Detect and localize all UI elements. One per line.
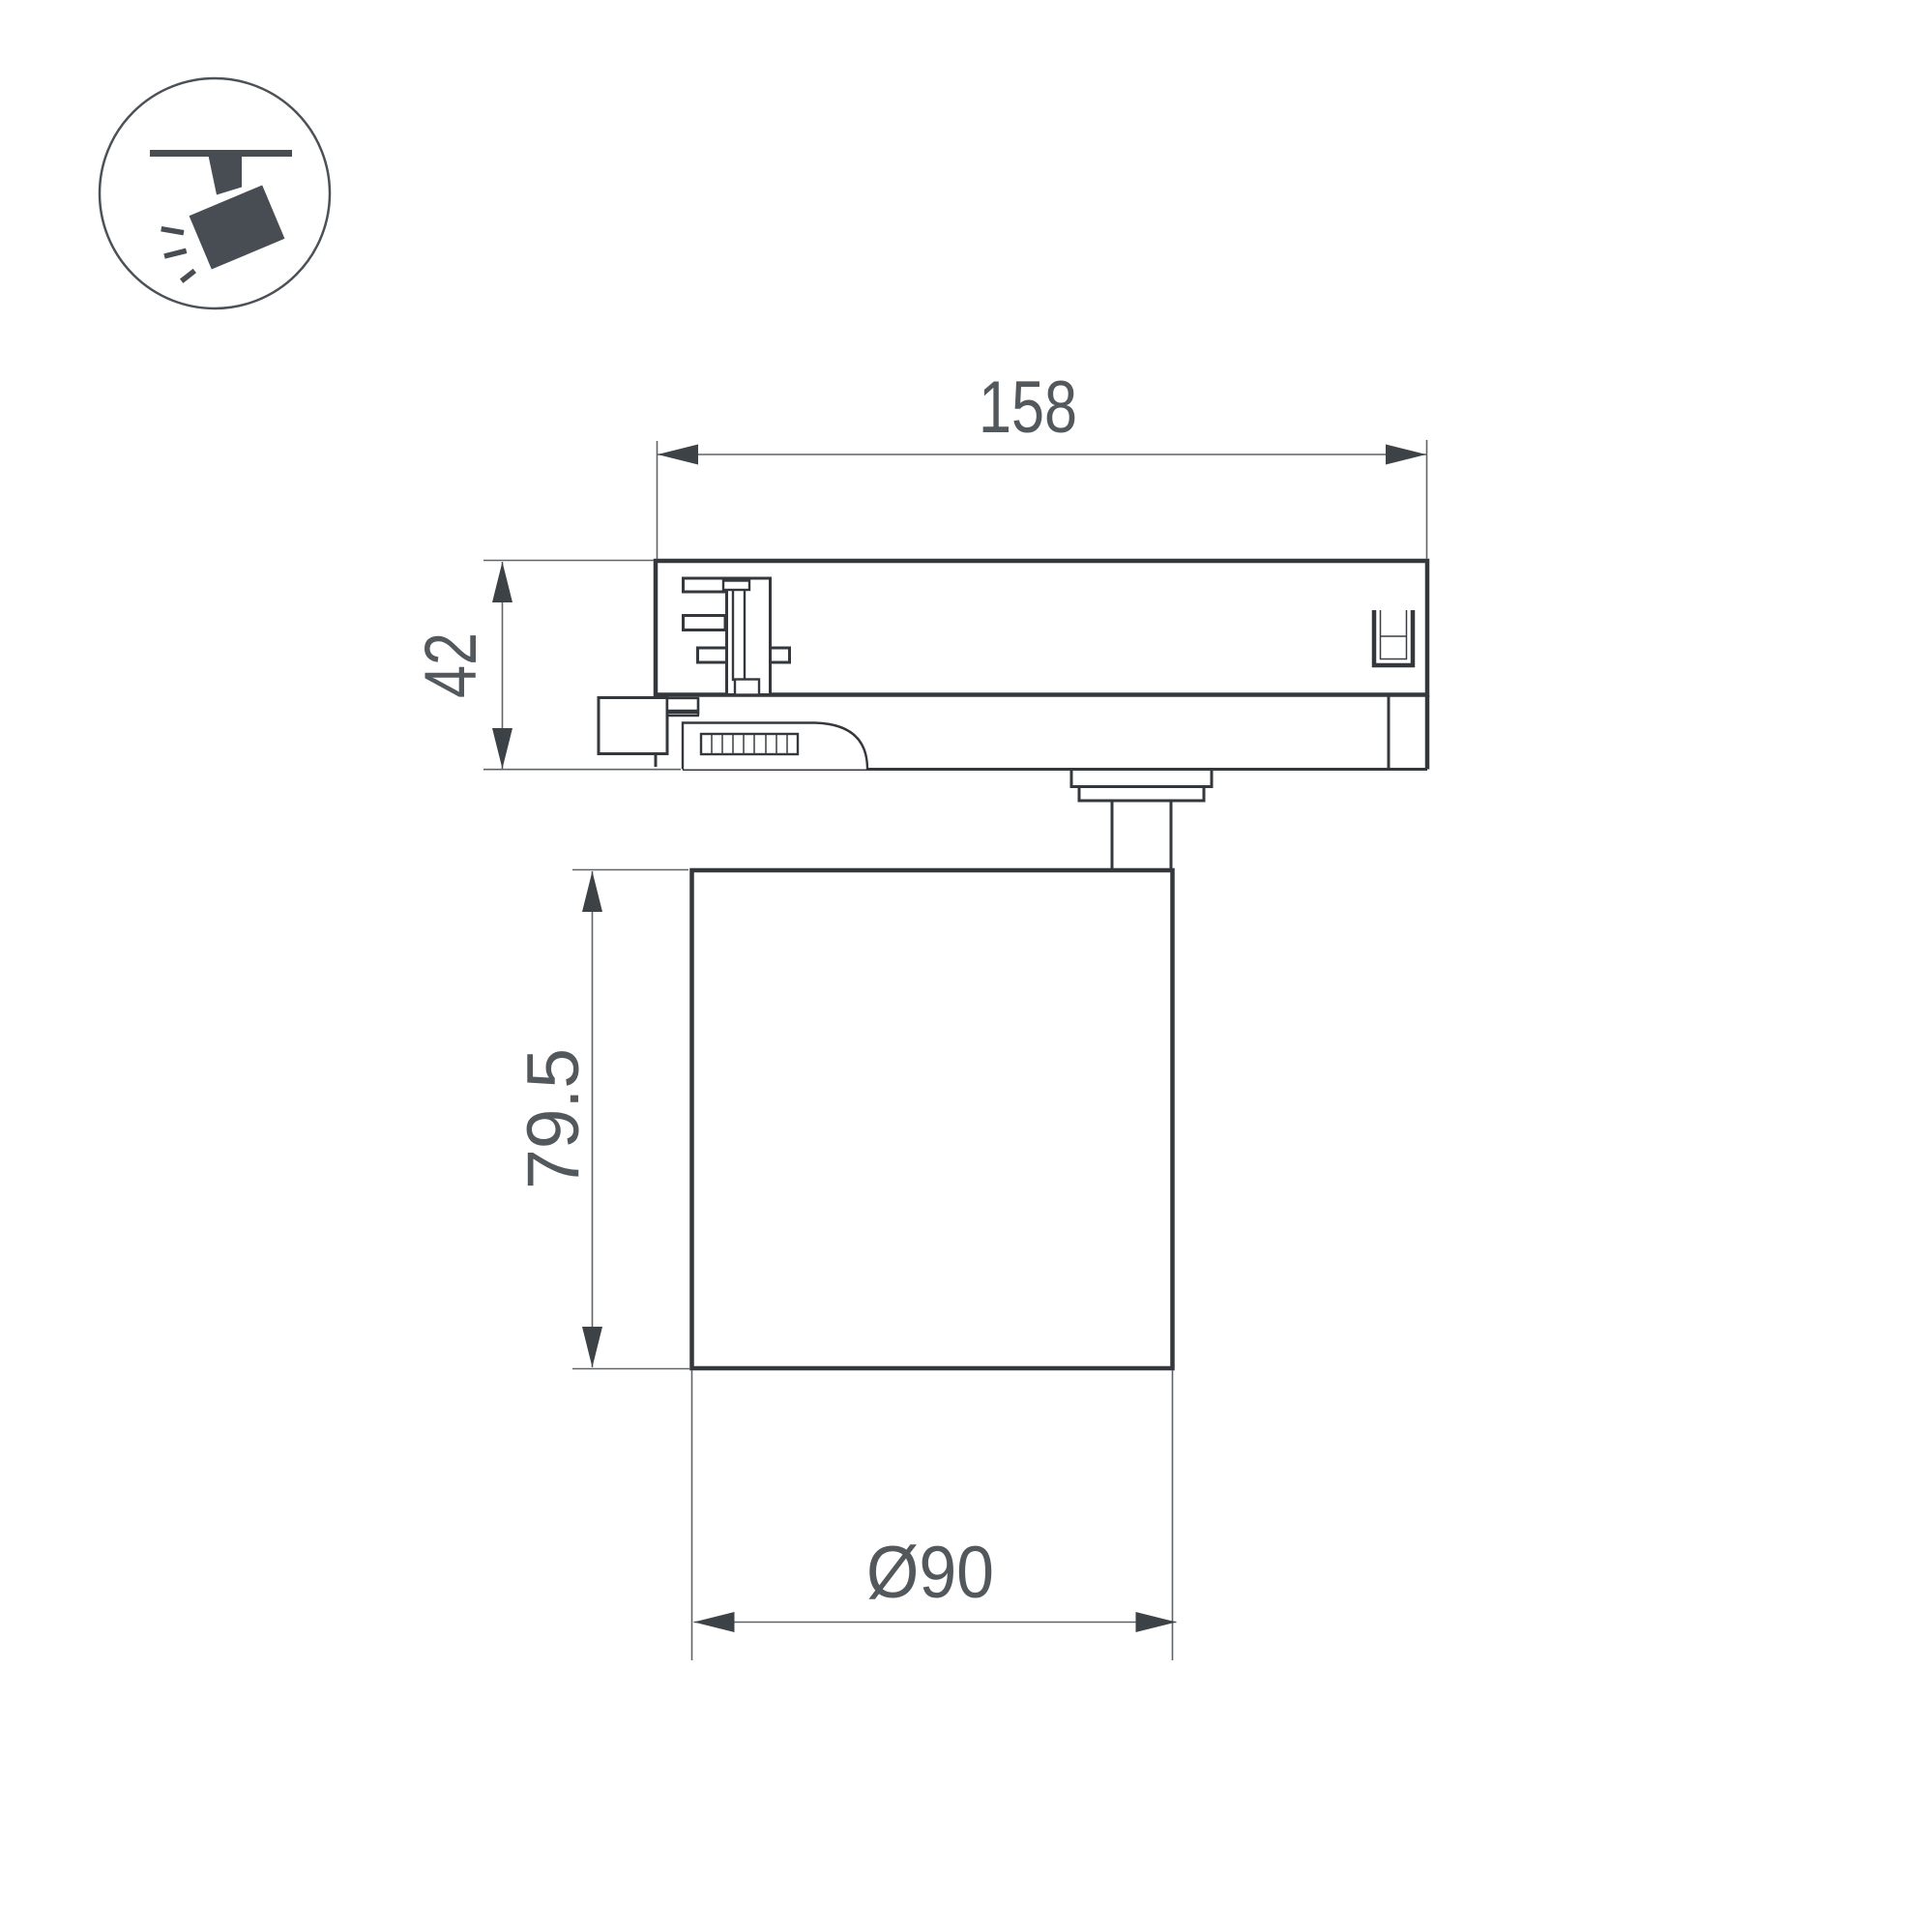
lamp-body — [692, 870, 1173, 1368]
arrow-up — [492, 562, 512, 602]
dimension-diameter: Ø90 — [692, 1370, 1177, 1660]
dimension-track-width: 158 — [658, 366, 1427, 559]
arrow-right — [1136, 1612, 1177, 1632]
technical-drawing-page: 158 42 79.5 Ø90 — [0, 0, 1932, 1932]
dimension-body-height: 79.5 — [512, 870, 689, 1369]
contact-pin-cap — [723, 581, 749, 591]
contact-tooth-middle — [684, 616, 726, 630]
arrow-up — [582, 871, 602, 912]
dimension-label-body-height: 79.5 — [512, 1048, 595, 1189]
dimension-label-diameter: Ø90 — [866, 1532, 994, 1614]
contact-tooth-right — [771, 648, 790, 662]
contact-tooth-top — [684, 578, 727, 592]
arrow-left — [658, 445, 698, 465]
lock-lever-box — [599, 698, 667, 754]
dimension-label-track-width: 158 — [979, 366, 1077, 449]
icon-ceiling-track — [150, 150, 292, 157]
contact-pin — [733, 585, 745, 680]
stem-step-1 — [1071, 770, 1212, 787]
dimension-label-adapter-height: 42 — [410, 632, 492, 698]
track-light-dimension-drawing: 158 42 79.5 Ø90 — [0, 0, 1932, 1932]
arrow-down — [492, 728, 512, 769]
mounting-stem — [1071, 770, 1212, 871]
contact-tooth-bottom — [698, 648, 727, 662]
arrow-left — [694, 1612, 735, 1632]
contact-foot — [735, 680, 759, 695]
icon-circle — [100, 78, 330, 308]
arrow-down — [582, 1327, 602, 1367]
stem-step-2 — [1079, 787, 1204, 802]
arrow-right — [1386, 445, 1426, 465]
track-spotlight-icon — [100, 78, 330, 308]
stem-column — [1112, 801, 1171, 870]
adapter-front-housing — [683, 723, 867, 770]
dip-switch-grille — [701, 734, 798, 754]
